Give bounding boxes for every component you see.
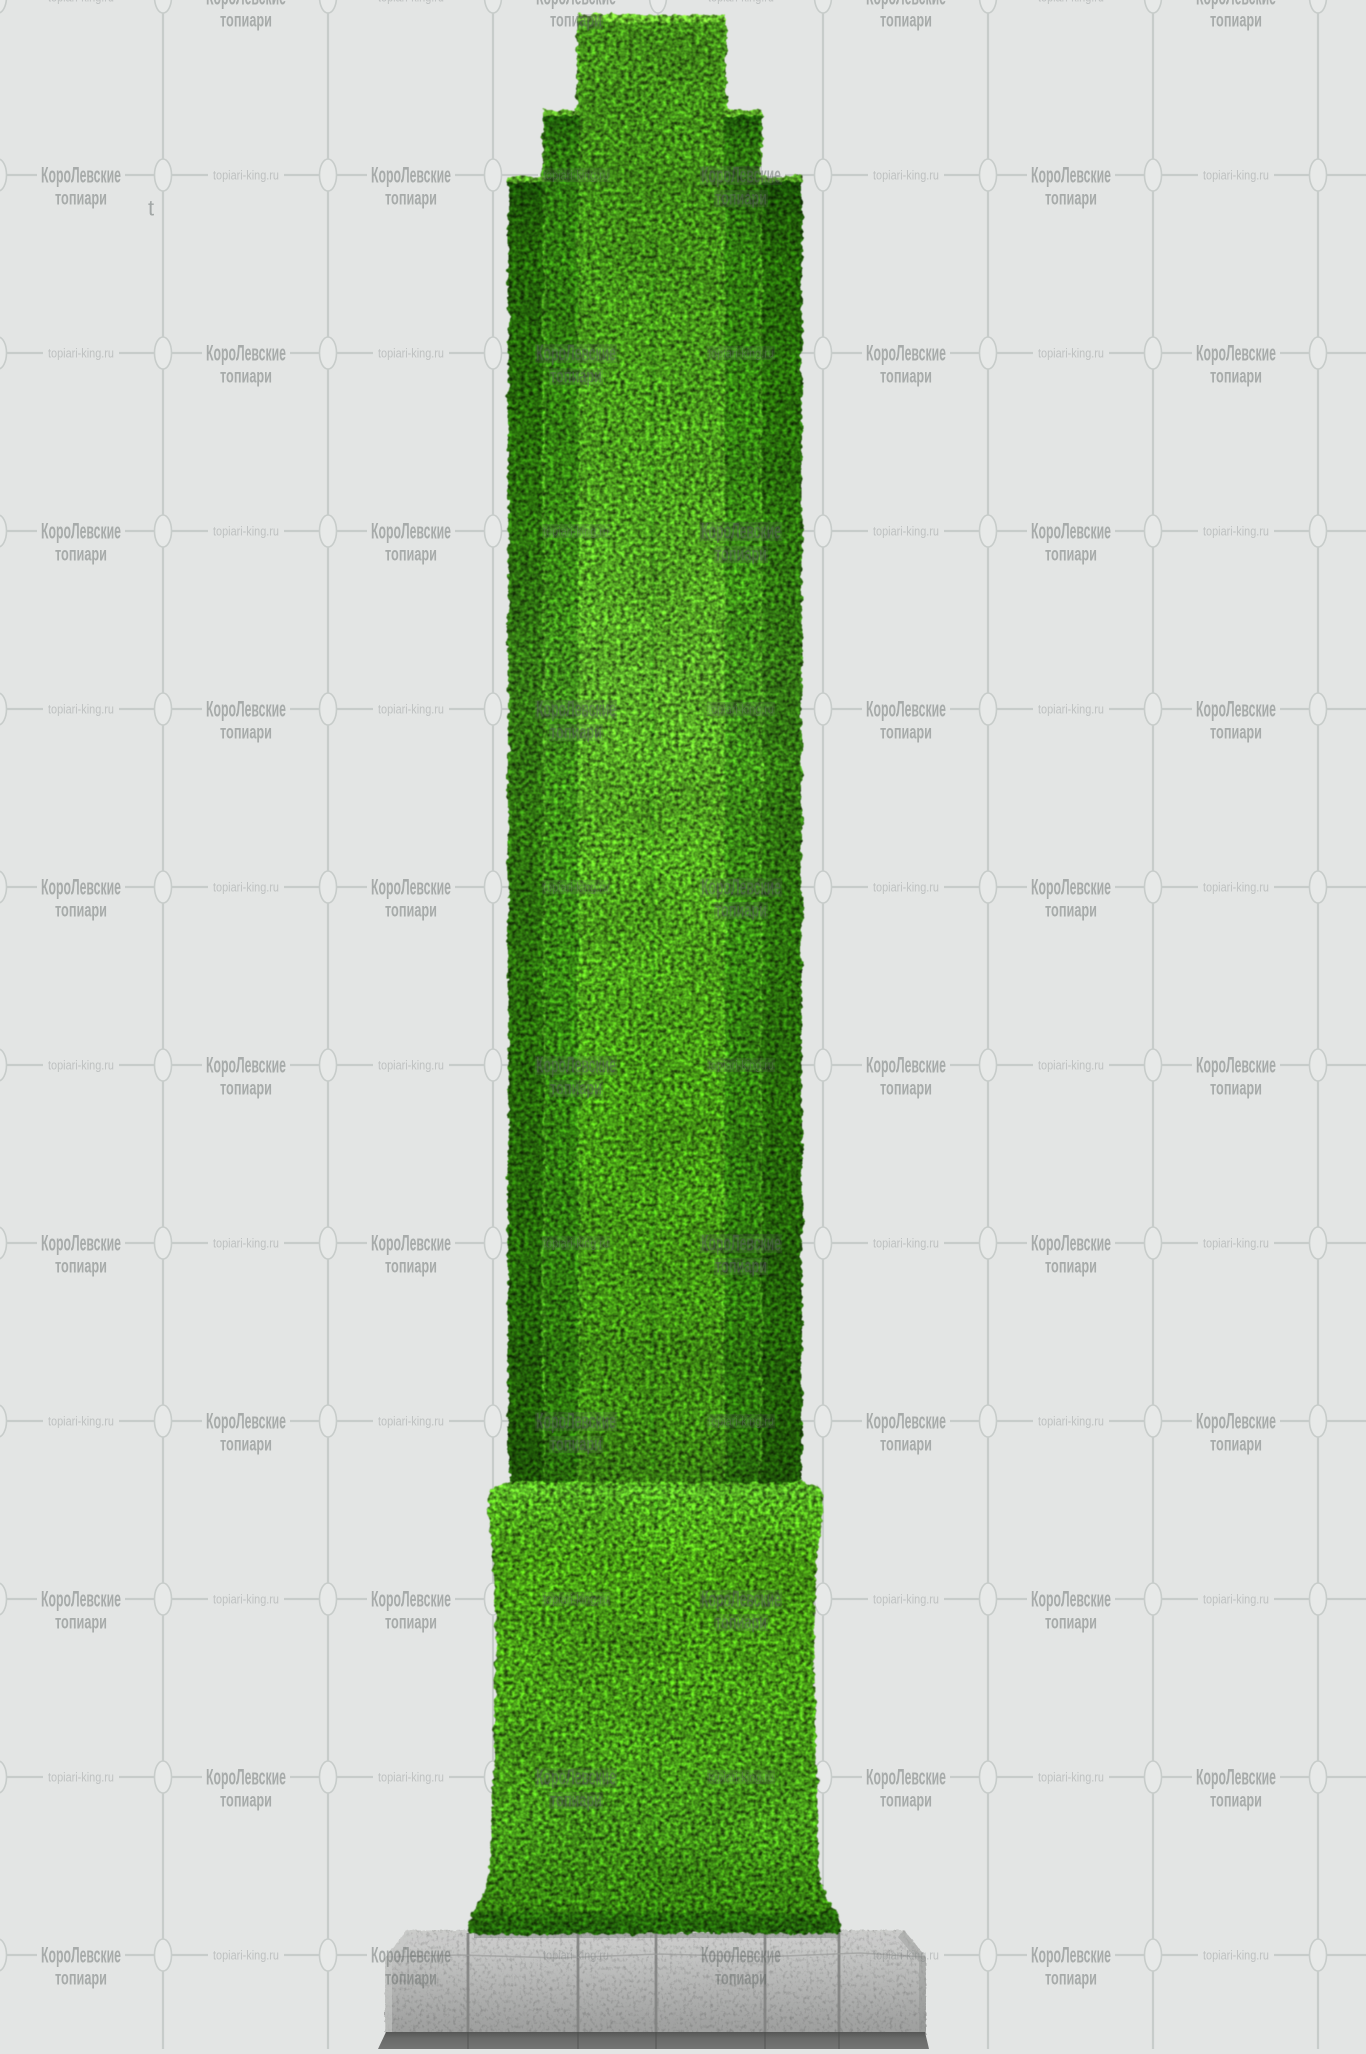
svg-text:t: t [148,196,154,221]
